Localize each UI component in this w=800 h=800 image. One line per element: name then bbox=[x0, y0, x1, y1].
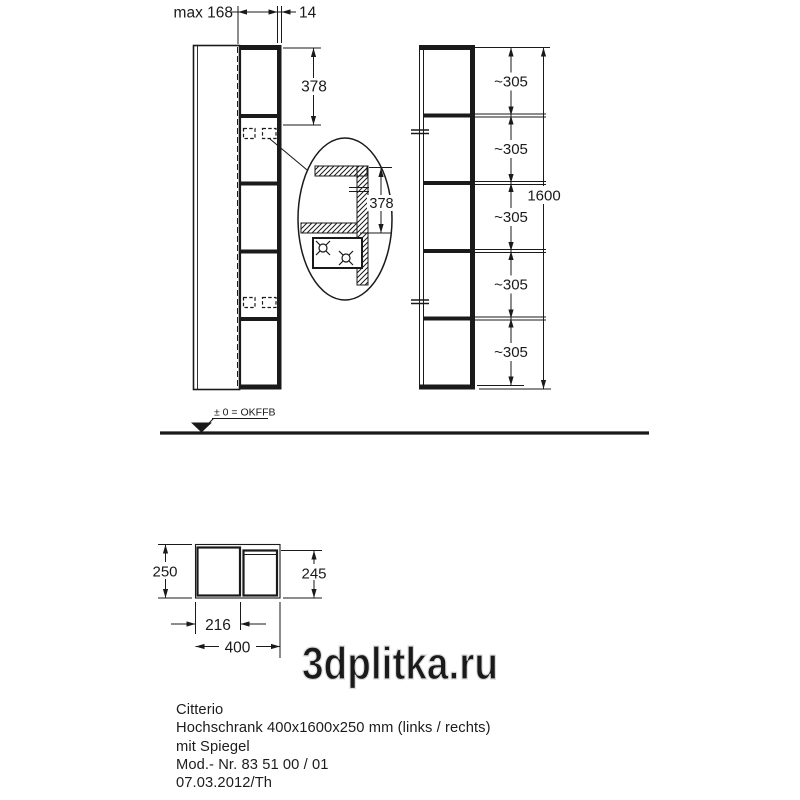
detail-callout: 378 bbox=[298, 138, 396, 300]
arrowhead bbox=[269, 9, 278, 14]
side-shelf-3 bbox=[424, 249, 471, 253]
dim-378-label: 378 bbox=[301, 79, 327, 96]
cabinet-technical-drawing: max 168 14 378 bbox=[0, 0, 800, 800]
dim-spacing-label-3: ~305 bbox=[494, 209, 528, 226]
plan-outline bbox=[196, 545, 281, 599]
dim-panel-thickness-label: 14 bbox=[299, 5, 317, 22]
carcass-right-wall bbox=[277, 45, 282, 390]
dim-door-width-label: 216 bbox=[205, 617, 231, 634]
bracket-bottom-left bbox=[244, 298, 256, 308]
dim-depth-right-label: 245 bbox=[301, 566, 326, 583]
carcass-top bbox=[240, 45, 282, 50]
product-description: Hochschrank 400x1600x250 mm (links / rec… bbox=[176, 719, 491, 737]
shelf-3 bbox=[241, 250, 278, 254]
dim-max-width bbox=[231, 6, 296, 44]
arrowhead bbox=[311, 116, 316, 125]
shelf-1 bbox=[241, 114, 278, 118]
dim-spacing-label-5: ~305 bbox=[494, 344, 528, 361]
detail-leader-line bbox=[270, 139, 310, 172]
dim-total-width-label: 400 bbox=[225, 640, 251, 657]
model-number: Mod.- Nr. 83 51 00 / 01 bbox=[176, 756, 491, 774]
series-name: Citterio bbox=[176, 701, 491, 719]
date-reference: 07.03.2012/Th bbox=[176, 774, 491, 792]
side-shelf-2 bbox=[424, 181, 471, 185]
front-view bbox=[194, 45, 282, 390]
bracket-bottom-right bbox=[263, 298, 277, 308]
detail-shelf-hatched bbox=[301, 223, 357, 233]
detail-circle bbox=[298, 138, 392, 300]
side-top bbox=[419, 45, 475, 50]
technical-drawing-page: max 168 14 378 bbox=[0, 0, 800, 800]
title-block: Citterio Hochschrank 400x1600x250 mm (li… bbox=[176, 701, 491, 792]
ground-line-group: ± 0 = OKFFB bbox=[160, 407, 649, 434]
door-panel bbox=[194, 46, 240, 390]
dim-spacing-label-2: ~305 bbox=[494, 141, 528, 158]
carcass-bottom bbox=[240, 385, 282, 390]
arrowhead bbox=[238, 9, 247, 14]
floor-level-label: ± 0 = OKFFB bbox=[214, 407, 276, 419]
side-bottom bbox=[419, 385, 475, 390]
bracket-top-right bbox=[263, 129, 277, 139]
shelf-4 bbox=[241, 317, 278, 321]
dim-total-height bbox=[541, 48, 546, 390]
watermark-text: 3dplitka.ru bbox=[302, 638, 498, 689]
plan-view bbox=[196, 545, 281, 599]
datum-level-icon bbox=[191, 423, 212, 433]
side-shelf-4 bbox=[424, 317, 471, 321]
side-view bbox=[411, 45, 475, 390]
arrowhead bbox=[311, 48, 316, 57]
detail-bracket-box bbox=[313, 238, 362, 268]
arrowhead bbox=[282, 9, 291, 14]
plan-shelf-box bbox=[244, 551, 278, 596]
side-shelf-1 bbox=[424, 114, 471, 118]
plan-door-box bbox=[198, 548, 241, 596]
dim-spacing-label-4: ~305 bbox=[494, 277, 528, 294]
dim-total-height-label: 1600 bbox=[527, 188, 560, 205]
side-back-wall bbox=[470, 45, 475, 390]
product-feature: mit Spiegel bbox=[176, 738, 491, 756]
dim-max-width-label: max 168 bbox=[174, 5, 233, 22]
dim-spacing-label-1: ~305 bbox=[494, 74, 528, 91]
bracket-top-left bbox=[244, 129, 256, 139]
shelf-2 bbox=[241, 182, 278, 186]
detail-dim-378-label: 378 bbox=[369, 196, 393, 212]
dim-depth-left-label: 250 bbox=[152, 564, 177, 581]
mounting-brackets bbox=[244, 129, 277, 308]
